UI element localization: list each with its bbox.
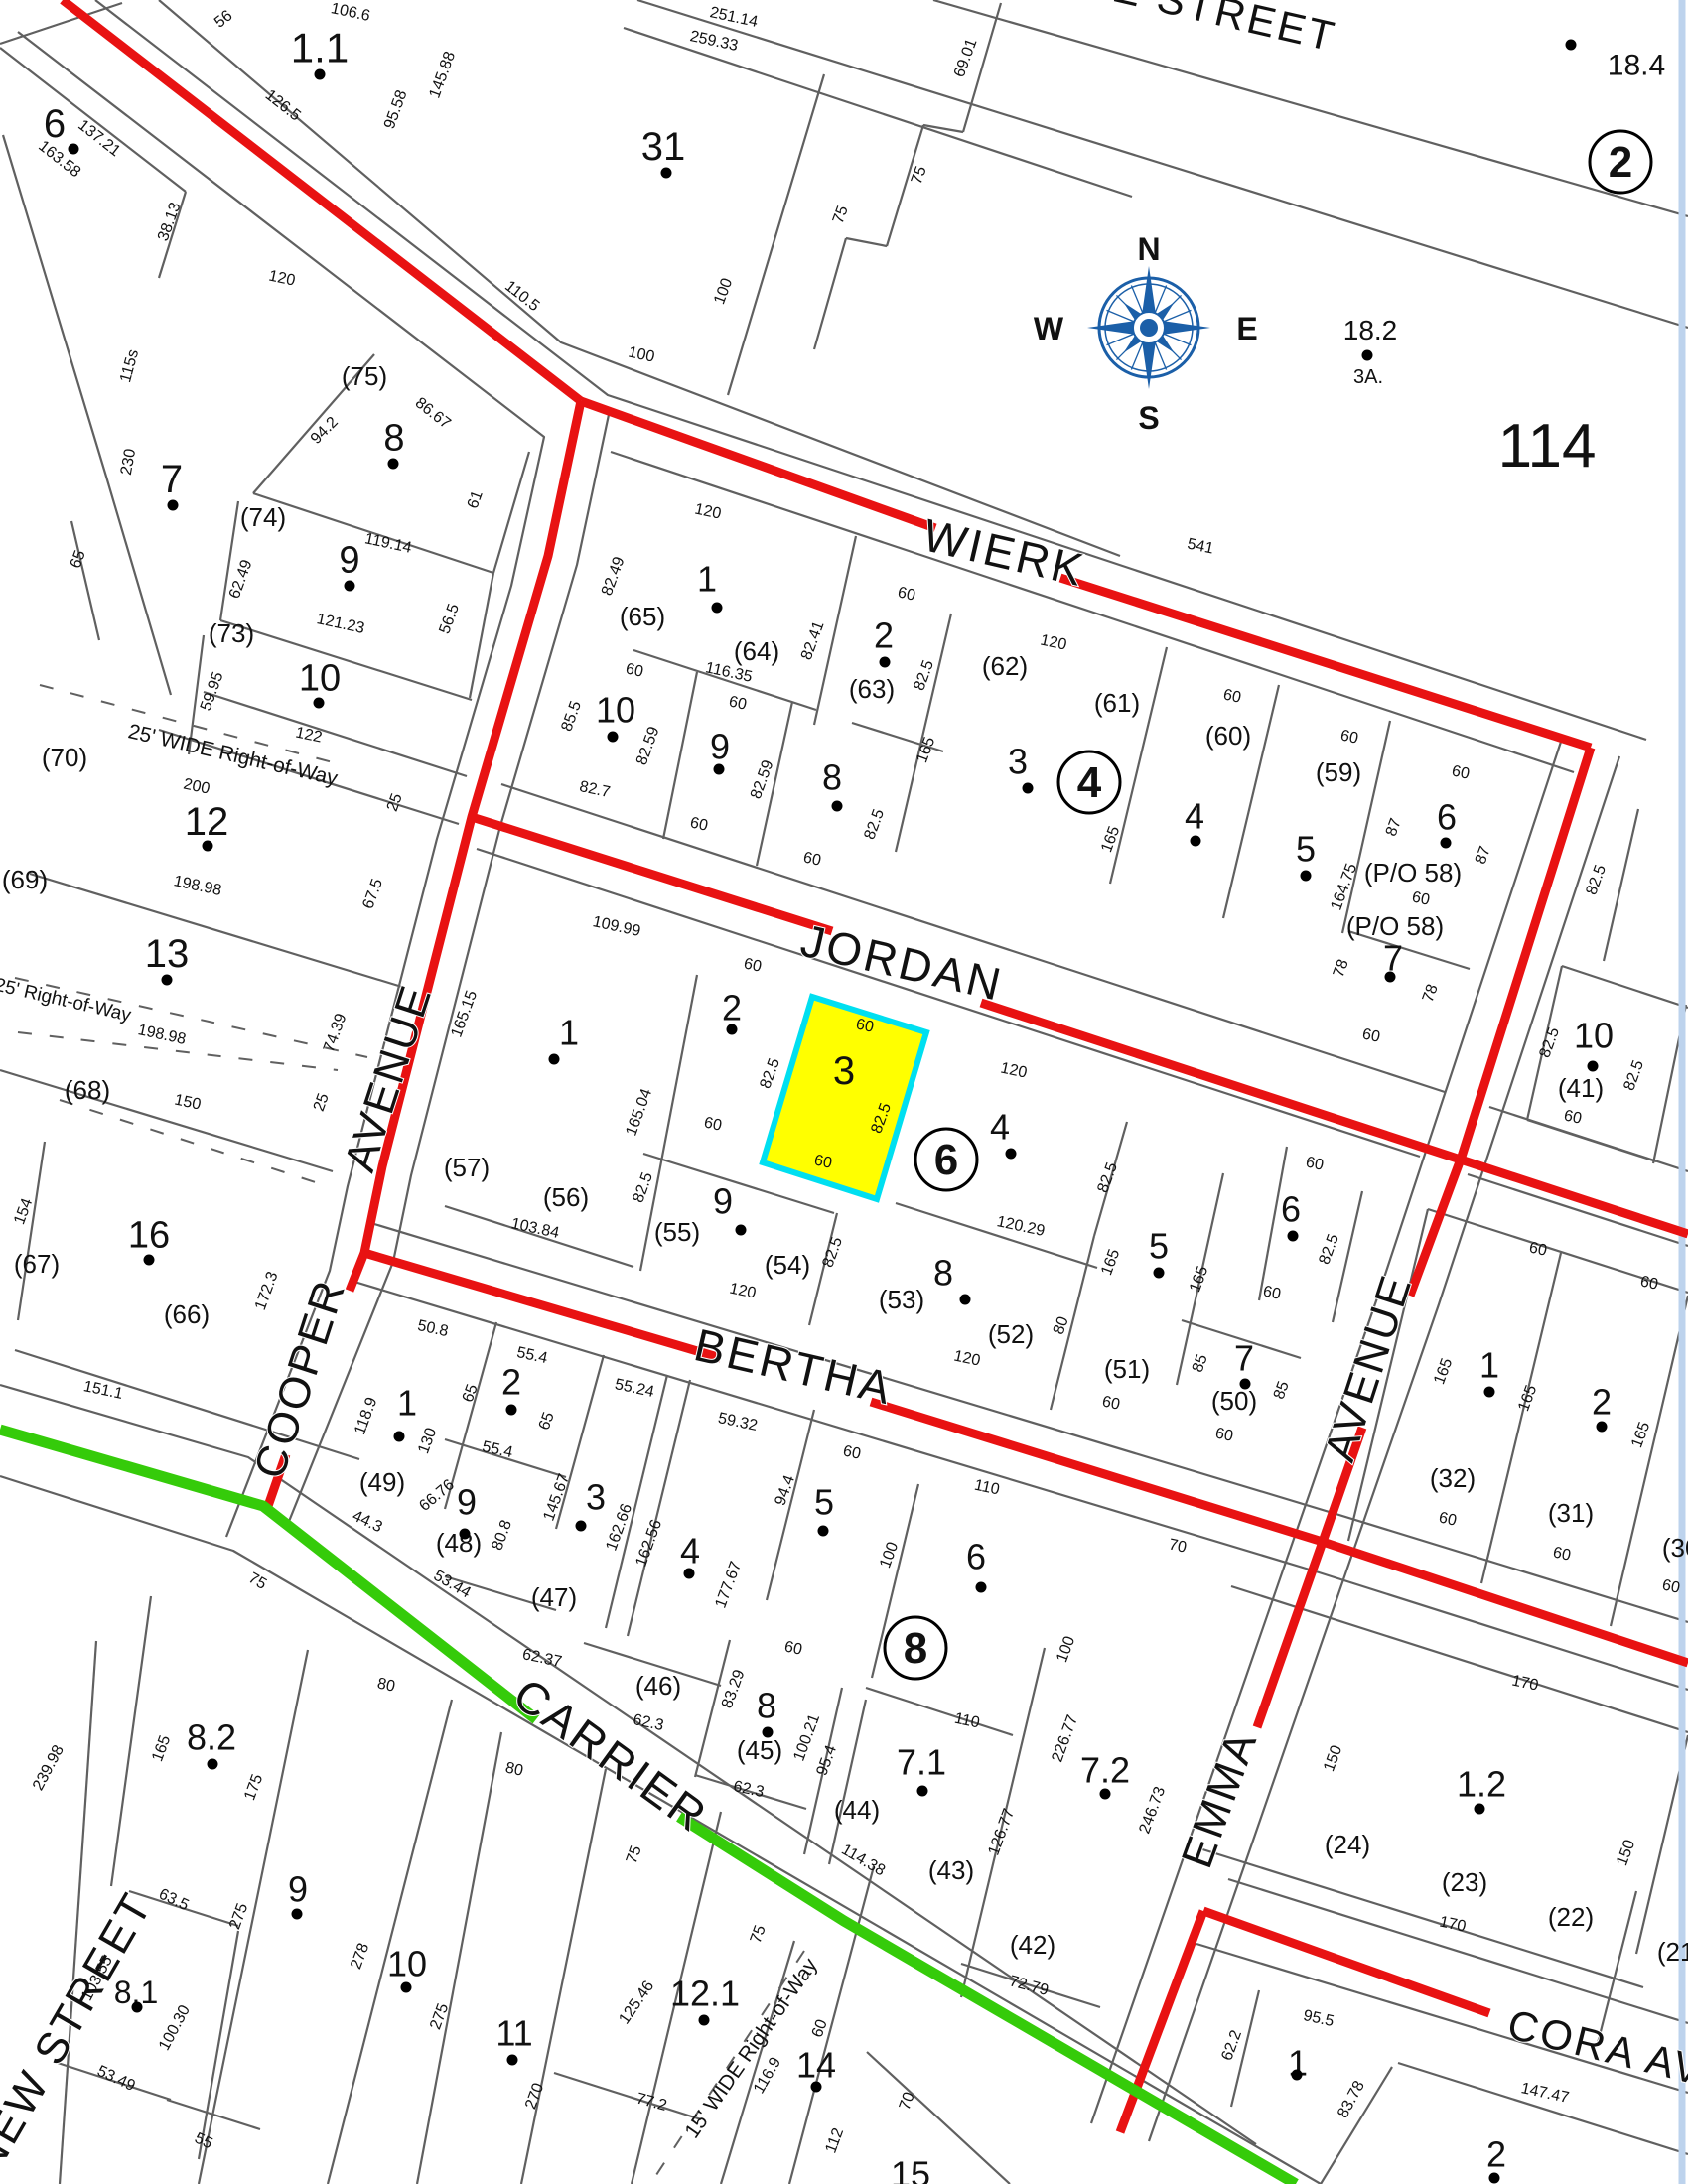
parcel-number-label[interactable]: 9 [710,727,730,767]
lot-label-56: (56) [543,1182,589,1212]
lot-label-68: (68) [65,1075,110,1105]
parcel-point-dot[interactable] [661,168,672,179]
block-number: 6 [934,1136,958,1184]
dimension-label: 60 [841,1442,862,1462]
parcel-point-dot[interactable] [292,1909,303,1920]
parcel-number-label[interactable]: 5 [814,1482,834,1523]
parcel-point-dot[interactable] [1292,2070,1303,2081]
parcel-number-label[interactable]: 1 [559,1013,579,1053]
parcel-number-label[interactable]: 9 [713,1181,733,1222]
parcel-point-dot[interactable] [699,2015,710,2026]
block-number: 8 [904,1624,927,1673]
parcel-marker-15[interactable]: 15 [891,2154,930,2184]
parcel-point-dot[interactable] [345,581,355,592]
lot-label-44: (44) [834,1795,880,1825]
lot-label-64: (64) [734,636,779,666]
parcel-point-dot[interactable] [401,1982,412,1993]
parcel-point-dot[interactable] [1566,40,1577,51]
lot-label-50: (50) [1211,1386,1257,1416]
parcel-number-label[interactable]: 6 [966,1537,986,1577]
compass-hub [1140,319,1158,337]
parcel-number-label[interactable]: 8 [757,1686,776,1726]
parcel-point-dot[interactable] [507,2055,518,2066]
parcel-number-label[interactable]: 6 [1437,797,1457,838]
parcel-point-dot[interactable] [1475,1804,1485,1815]
parcel-number-label[interactable]: 7.2 [1080,1750,1130,1791]
lot-label-57: (57) [444,1153,490,1182]
parcel-number-label[interactable]: 8 [933,1253,953,1294]
parcel-number-label[interactable]: 10 [387,1944,427,1984]
parcel-point-dot[interactable] [549,1054,560,1065]
parcel-point-dot[interactable] [712,603,723,614]
parcel-number-label[interactable]: 9 [339,539,359,581]
parcel-number-label[interactable]: 2 [722,988,742,1028]
lot-label-49: (49) [359,1467,405,1497]
parcel-number-label[interactable]: 16 [128,1214,170,1256]
lot-label-24: (24) [1325,1830,1370,1859]
lot-label-73: (73) [209,618,254,648]
lot-label-61: (61) [1094,688,1140,718]
parcel-number-label[interactable]: 15 [891,2154,930,2184]
dimension-label: 60 [1261,1283,1282,1302]
parcel-number-label[interactable]: 12 [185,800,229,844]
parcel-point-dot[interactable] [1441,838,1452,849]
dimension-label: 80 [503,1759,524,1779]
block-number: 2 [1609,138,1632,187]
parcel-number-label[interactable]: 10 [1574,1016,1614,1056]
parcel-number-label[interactable]: 2 [1592,1382,1612,1423]
lot-label-30: (30) [1662,1533,1688,1563]
parcel-number-label[interactable]: 10 [596,690,635,731]
parcel-marker-2[interactable]: 2 [722,988,742,1035]
compass-label-s: S [1138,400,1159,436]
parcel-number-label[interactable]: 9 [457,1482,477,1523]
dimension-label: 60 [727,693,748,713]
dimension-label: 60 [1360,1025,1381,1045]
parcel-point-dot[interactable] [314,698,325,709]
parcel-point-dot[interactable] [208,1759,218,1770]
parcel-point-dot[interactable] [315,69,326,80]
parcel-number-label[interactable]: 7 [1234,1338,1254,1379]
lot-label-48: (48) [436,1528,482,1558]
dimension-label: 80 [375,1675,396,1695]
lot-label-52: (52) [988,1319,1034,1349]
highlighted-parcel-label: 3 [833,1049,855,1093]
dimension-label: 60 [801,849,822,869]
parcel-number-label[interactable]: 7 [161,458,183,501]
compass-label-w: W [1034,311,1064,346]
compass-label-n: N [1137,231,1160,267]
parcel-point-dot[interactable] [976,1582,987,1593]
parcel-number-label[interactable]: 6 [44,102,66,146]
parcel-point-dot[interactable] [1154,1268,1165,1279]
dimension-label: 60 [688,814,709,834]
dimension-label: 60 [1304,1154,1325,1173]
parcel-point-dot[interactable] [818,1526,829,1537]
parcel-point-dot[interactable] [1597,1422,1608,1433]
lot-label-65: (65) [620,602,665,631]
parcel-marker-14[interactable]: 14 [796,2045,836,2093]
parcel-point-dot[interactable] [811,2082,822,2093]
dimension-label: 60 [1562,1107,1583,1127]
parcel-point-dot[interactable] [960,1295,971,1305]
dimension-label: 60 [1338,727,1359,747]
parcel-number-label[interactable]: 31 [641,125,686,169]
parcel-point-dot[interactable] [1240,1379,1251,1390]
parcel-marker-12[interactable]: 12 [185,800,229,852]
parcel-number-label[interactable]: 13 [145,932,190,976]
dimension-label: 60 [1551,1544,1572,1564]
lot-label-70: (70) [42,743,87,772]
parcel-point-dot[interactable] [832,801,843,812]
lot-label-45: (45) [737,1735,782,1765]
parcel-point-dot[interactable] [144,1255,155,1266]
parcel-number-label[interactable]: 1.2 [1457,1764,1506,1805]
lot-label-53: (53) [879,1285,924,1314]
map-canvas[interactable]: 3E STREETWIERKJORDANBERTHACARRIERCOOPERA… [0,0,1688,2184]
parcel-point-dot[interactable] [576,1521,587,1532]
lot-label-74: (74) [240,502,286,532]
lot-label-51: (51) [1104,1354,1150,1384]
lot-label-62: (62) [982,651,1028,681]
parcel-marker-1[interactable]: 1 [1288,2043,1308,2084]
parcel-point-dot[interactable] [460,1529,471,1540]
lot-label-75: (75) [342,361,387,391]
lot-label-69: (69) [2,865,48,894]
parcel-number-label[interactable]: 4 [1185,796,1204,837]
parcel-number-label[interactable]: 7.1 [897,1742,946,1783]
lot-label-60: (60) [1205,721,1251,751]
parcel-point-dot[interactable] [1100,1789,1111,1800]
parcel-point-dot[interactable] [727,1024,738,1035]
lot-label-41: (41) [1558,1073,1604,1103]
parcel-marker-8.1[interactable]: 8.1 [114,1975,158,2012]
parcel-number-label[interactable]: 2 [501,1362,521,1403]
dimension-label: 60 [1527,1239,1548,1259]
lot-label-66: (66) [164,1299,210,1329]
compass-label-e: E [1236,311,1257,346]
lot-label-59: (59) [1316,757,1361,787]
parcel-point-dot[interactable] [736,1225,747,1236]
parcel-point-dot[interactable] [203,841,213,852]
lot-label-22: (22) [1548,1902,1594,1932]
dimension-label: 60 [812,1152,833,1171]
parcel-number-label[interactable]: 11 [495,2013,532,2054]
parcel-point-dot[interactable] [1362,350,1373,361]
parcel-point-dot[interactable] [1288,1231,1299,1242]
dimension-label: 60 [1213,1425,1234,1444]
dimension-label: 60 [702,1114,723,1134]
parcel-point-dot[interactable] [684,1569,695,1579]
parcel-number-label[interactable]: 10 [299,657,341,699]
lot-label-46: (46) [635,1671,681,1701]
parcel-point-dot[interactable] [917,1786,928,1797]
parcel-point-dot[interactable] [506,1405,517,1416]
lot-label-42: (42) [1010,1930,1055,1960]
lot-label-55: (55) [654,1217,700,1247]
parcel-point-dot[interactable] [1301,871,1312,882]
parcel-point-dot[interactable] [1588,1061,1599,1072]
parcel-marker-7[interactable]: 7 [1383,938,1403,983]
dimension-label: 60 [1221,686,1242,706]
parcel-number-label[interactable]: 3 [586,1477,606,1518]
parcel-number-label[interactable]: 1 [1479,1345,1499,1386]
parcel-point-dot[interactable] [1484,1387,1495,1398]
parcel-number-label[interactable]: 8 [822,757,842,798]
dimension-label: 60 [1437,1509,1458,1529]
parcel-number-label[interactable]: 5 [1149,1226,1169,1267]
parcel-point-dot[interactable] [394,1432,405,1442]
dimension-label: 60 [1660,1576,1681,1596]
dimension-label: 60 [896,584,916,604]
parcel-point-dot[interactable] [1191,836,1201,847]
parcel-number-label[interactable]: 8 [383,417,404,459]
lot-label-67: (67) [14,1249,60,1279]
map-viewport[interactable]: 3E STREETWIERKJORDANBERTHACARRIERCOOPERA… [0,0,1688,2184]
parcel-point-dot[interactable] [714,764,725,775]
parcel-point-dot[interactable] [1006,1149,1017,1160]
dimension-label: 60 [782,1638,803,1658]
lot-label-47: (47) [531,1582,577,1612]
parcel-point-dot[interactable] [162,975,173,986]
lot-label-32: (32) [1430,1463,1476,1493]
parcel-number-label[interactable]: 1 [397,1383,417,1424]
parcel-number-label[interactable]: 5 [1296,829,1316,870]
lot-label-54: (54) [765,1250,810,1280]
parcel-point-dot[interactable] [608,732,619,743]
block-number: 4 [1077,758,1102,807]
parcel-number-label[interactable]: 14 [796,2045,836,2086]
parcel-number-label[interactable]: 4 [990,1107,1010,1148]
parcel-number-label[interactable]: 2 [874,615,894,656]
parcel-point-dot[interactable] [880,657,891,668]
note-3a-: 3A. [1353,366,1383,388]
parcel-number-label[interactable]: 2 [1486,2134,1506,2175]
lot-label-21: (21) [1657,1937,1688,1967]
parcel-number-label[interactable]: 3 [1008,742,1028,782]
lot-label-PO58: (P/O 58) [1346,911,1444,941]
parcel-number-label[interactable]: 9 [288,1869,308,1910]
parcel-point-dot[interactable] [168,500,179,511]
parcel-number-label[interactable]: 18.4 [1608,50,1665,82]
parcel-point-dot[interactable] [132,2002,143,2013]
parcel-number-label[interactable]: 6 [1281,1189,1301,1230]
dimension-label: 60 [1100,1393,1121,1413]
lot-label-23: (23) [1442,1867,1487,1897]
dimension-label: 60 [742,955,763,975]
parcel-number-label[interactable]: 1.1 [291,25,349,71]
parcel-point-dot[interactable] [1489,2173,1500,2184]
dimension-label: 60 [1410,888,1431,908]
lot-label-63: (63) [849,674,895,704]
dimension-label: 60 [1638,1273,1659,1293]
lot-label-43: (43) [928,1855,974,1885]
parcel-number-label[interactable]: 8.2 [187,1717,236,1758]
parcel-number-label[interactable]: 18.2 [1343,315,1398,345]
parcel-number-label[interactable]: 4 [680,1531,700,1571]
dimension-label: 60 [1450,762,1471,782]
parcel-point-dot[interactable] [1385,972,1396,983]
lot-label-PO58: (P/O 58) [1364,858,1462,887]
parcel-number-label[interactable]: 12.1 [670,1974,740,2014]
parcel-point-dot[interactable] [388,459,399,470]
dimension-label: 70 [1167,1536,1188,1556]
district-number-114: 114 [1498,412,1597,480]
parcel-point-dot[interactable] [69,144,79,155]
lot-label-31: (31) [1548,1498,1594,1528]
dimension-label: 60 [854,1016,875,1035]
parcel-point-dot[interactable] [1023,783,1034,794]
parcel-point-dot[interactable] [763,1727,774,1738]
parcel-map-page: { "title": "Tax parcel map sheet 114", "… [0,0,1688,2184]
dimension-label: 60 [624,660,644,680]
parcel-number-label[interactable]: 1 [697,559,717,600]
